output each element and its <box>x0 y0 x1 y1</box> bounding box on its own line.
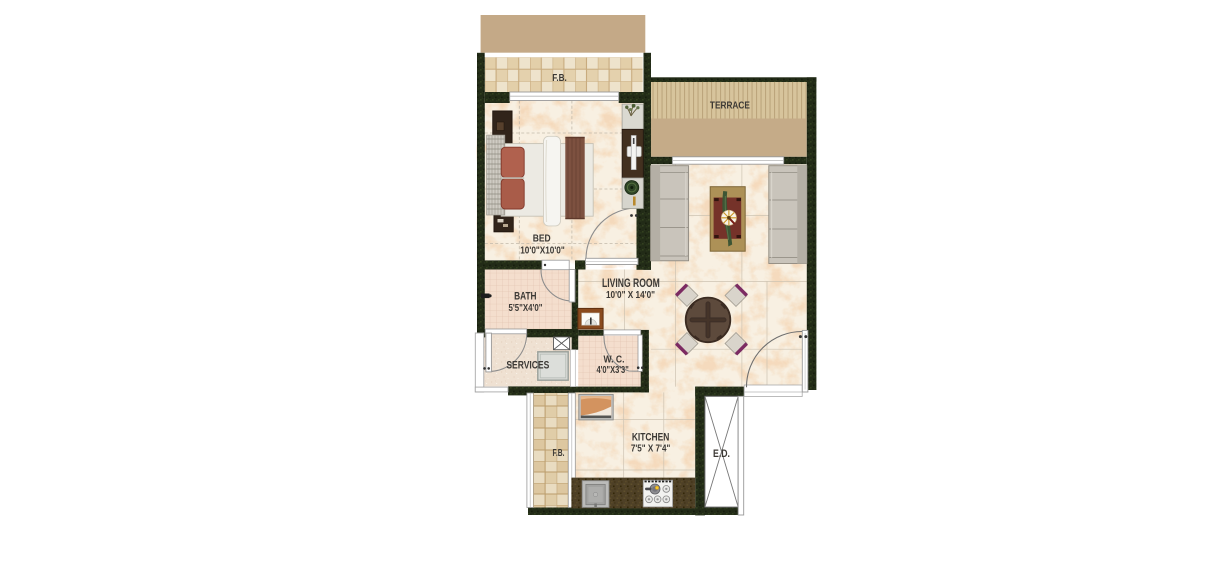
svg-text:E.D.: E.D. <box>713 448 730 460</box>
svg-text:4'0"X3'3": 4'0"X3'3" <box>596 364 628 375</box>
svg-text:BED: BED <box>533 233 551 245</box>
svg-text:SERVICES: SERVICES <box>506 359 549 371</box>
svg-text:10'0" X 14'0": 10'0" X 14'0" <box>606 289 655 300</box>
svg-text:F.B.: F.B. <box>553 447 565 459</box>
svg-text:F.B.: F.B. <box>552 72 566 83</box>
svg-text:5'5"X4'0": 5'5"X4'0" <box>509 302 543 313</box>
svg-text:10'0"X10'0": 10'0"X10'0" <box>520 245 565 256</box>
svg-text:BATH: BATH <box>514 290 536 302</box>
svg-text:TERRACE: TERRACE <box>710 100 750 111</box>
svg-text:7'5" X 7'4": 7'5" X 7'4" <box>631 442 670 453</box>
